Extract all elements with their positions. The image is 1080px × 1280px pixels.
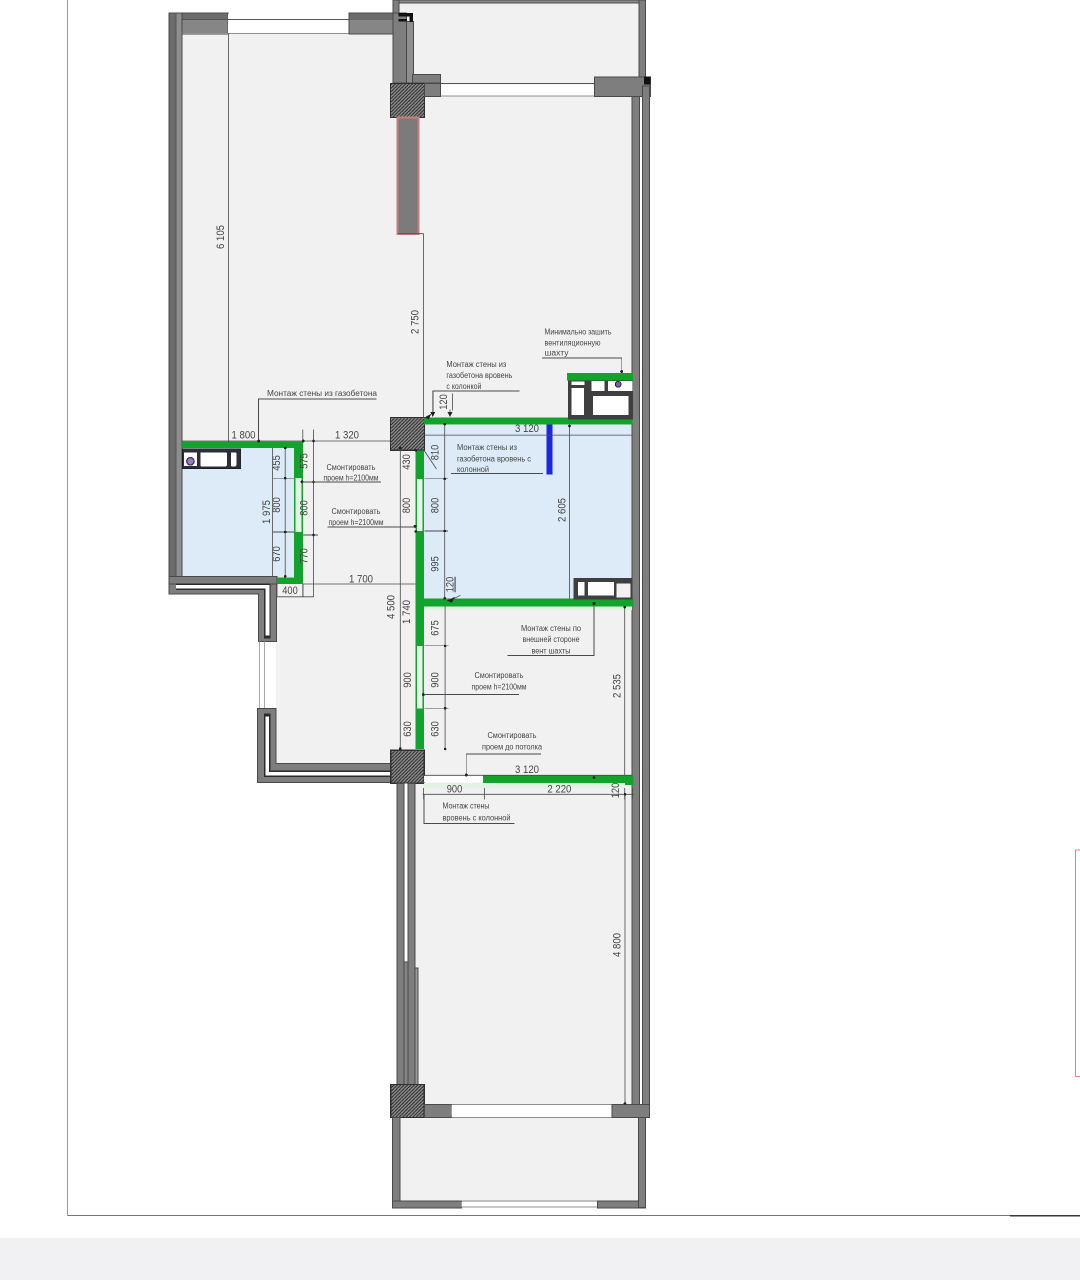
svg-text:2 535: 2 535	[612, 674, 624, 698]
svg-text:проем h=2100мм: проем h=2100мм	[472, 683, 527, 692]
svg-text:900: 900	[447, 784, 463, 796]
svg-text:120: 120	[438, 394, 450, 410]
svg-text:проем h=2100мм: проем h=2100мм	[324, 474, 379, 483]
svg-text:800: 800	[299, 500, 311, 516]
svg-text:газобетона вровень с: газобетона вровень с	[457, 455, 531, 464]
svg-text:455: 455	[271, 455, 283, 471]
svg-text:3 120: 3 120	[515, 764, 539, 776]
svg-text:1 700: 1 700	[349, 573, 373, 585]
svg-text:400: 400	[282, 585, 298, 597]
svg-text:630: 630	[402, 721, 414, 737]
svg-text:колонной: колонной	[457, 465, 489, 474]
svg-text:Смонтировать: Смонтировать	[475, 671, 524, 680]
svg-text:Монтаж стены из: Монтаж стены из	[457, 443, 517, 452]
svg-text:проем до потолка: проем до потолка	[482, 742, 542, 751]
svg-text:вровень с колонной: вровень с колонной	[443, 813, 511, 822]
svg-text:Смонтировать: Смонтировать	[488, 731, 537, 740]
svg-text:шахту: шахту	[545, 349, 569, 358]
svg-text:4 800: 4 800	[612, 933, 624, 957]
svg-text:575: 575	[299, 453, 311, 469]
svg-text:3 120: 3 120	[515, 423, 539, 435]
svg-text:800: 800	[430, 498, 442, 514]
svg-text:2 220: 2 220	[547, 784, 571, 796]
svg-text:Монтаж стены из: Монтаж стены из	[446, 360, 506, 369]
svg-text:800: 800	[401, 498, 413, 514]
svg-text:4 500: 4 500	[386, 595, 398, 619]
svg-text:1 740: 1 740	[401, 600, 413, 624]
svg-text:проем h=2100мм: проем h=2100мм	[329, 518, 384, 527]
svg-text:Монтаж стены: Монтаж стены	[443, 802, 490, 811]
svg-text:внешней стороне: внешней стороне	[523, 635, 580, 644]
svg-text:2 605: 2 605	[557, 498, 569, 522]
svg-text:2 750: 2 750	[410, 310, 422, 334]
svg-text:Монтаж стены из газобетона: Монтаж стены из газобетона	[267, 389, 378, 398]
svg-text:1 320: 1 320	[335, 429, 359, 441]
svg-text:995: 995	[430, 556, 442, 572]
svg-text:900: 900	[402, 672, 414, 688]
svg-text:120: 120	[610, 783, 622, 799]
svg-text:с колонкой: с колонкой	[446, 382, 481, 391]
svg-text:675: 675	[430, 620, 442, 636]
svg-text:Смонтировать: Смонтировать	[332, 507, 381, 516]
svg-text:430: 430	[401, 454, 413, 470]
svg-text:Монтаж стены по: Монтаж стены по	[521, 624, 582, 633]
svg-text:900: 900	[430, 672, 442, 688]
svg-text:вентиляционную: вентиляционную	[545, 339, 601, 348]
svg-text:810: 810	[430, 445, 442, 461]
svg-text:Минимально зашить: Минимально зашить	[545, 328, 612, 337]
svg-text:670: 670	[271, 546, 283, 562]
svg-text:630: 630	[430, 721, 442, 737]
svg-text:вент шахты: вент шахты	[532, 647, 571, 656]
svg-text:6 105: 6 105	[215, 225, 227, 249]
svg-text:770: 770	[299, 548, 311, 564]
svg-text:800: 800	[271, 497, 283, 513]
svg-text:1 800: 1 800	[232, 429, 256, 441]
svg-text:Смонтировать: Смонтировать	[327, 463, 376, 472]
svg-text:120: 120	[445, 577, 457, 593]
svg-text:газобетона вровень: газобетона вровень	[446, 371, 512, 380]
